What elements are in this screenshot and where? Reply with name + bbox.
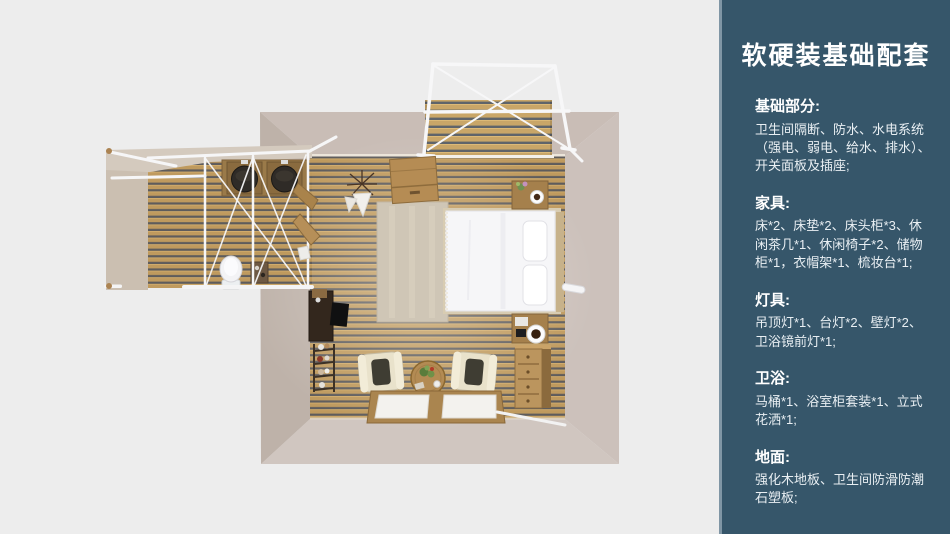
section-furniture-heading: 家具: — [755, 194, 938, 214]
section-bathroom-heading: 卫浴: — [755, 369, 938, 389]
nightstand-bottom — [512, 314, 548, 343]
section-bathroom-body: 马桶*1、浴室柜套装*1、立式 花洒*1; — [755, 393, 938, 430]
outdoor-deck — [423, 100, 554, 158]
spec-sidebar: 软硬装基础配套 基础部分: 卫生间隔断、防水、水电系统 （强电、弱电、给水、排水… — [719, 0, 950, 534]
lounge-chair-right — [450, 351, 497, 393]
section-basics: 基础部分: 卫生间隔断、防水、水电系统 （强电、弱电、给水、排水）、 开关面板及… — [755, 97, 938, 176]
section-lighting-heading: 灯具: — [755, 291, 938, 311]
floorplan-render — [0, 0, 719, 534]
section-lighting-body: 吊顶灯*1、台灯*2、壁灯*2、 卫浴镜前灯*1; — [755, 314, 938, 351]
lounge-chair-left — [357, 351, 404, 393]
storage-cabinet — [390, 156, 439, 203]
presentation-slide: 软硬装基础配套 基础部分: 卫生间隔断、防水、水电系统 （强电、弱电、给水、排水… — [0, 0, 950, 534]
toilet — [220, 256, 242, 289]
section-flooring-heading: 地面: — [755, 448, 938, 468]
chest-of-drawers — [515, 345, 551, 408]
double-bed — [443, 208, 564, 314]
section-flooring-body: 强化木地板、卫生间防滑防潮 石塑板; — [755, 471, 938, 508]
sidebar-title: 软硬装基础配套 — [722, 36, 950, 72]
section-flooring: 地面: 强化木地板、卫生间防滑防潮 石塑板; — [755, 448, 938, 508]
section-lighting: 灯具: 吊顶灯*1、台灯*2、壁灯*2、 卫浴镜前灯*1; — [755, 291, 938, 351]
section-basics-body: 卫生间隔断、防水、水电系统 （强电、弱电、给水、排水）、 开关面板及插座; — [755, 121, 938, 176]
section-basics-heading: 基础部分: — [755, 97, 938, 117]
nightstand-top — [512, 181, 548, 209]
round-tea-table — [411, 361, 445, 395]
floorplan-svg — [0, 0, 719, 534]
section-bathroom: 卫浴: 马桶*1、浴室柜套装*1、立式 花洒*1; — [755, 369, 938, 429]
area-rug — [377, 202, 448, 322]
section-furniture: 家具: 床*2、床垫*2、床头柜*3、休 闲茶几*1、休闲椅子*2、储物 柜*1… — [755, 194, 938, 273]
floor-windows — [367, 391, 505, 423]
section-furniture-body: 床*2、床垫*2、床头柜*3、休 闲茶几*1、休闲椅子*2、储物 柜*1，衣帽架… — [755, 217, 938, 272]
